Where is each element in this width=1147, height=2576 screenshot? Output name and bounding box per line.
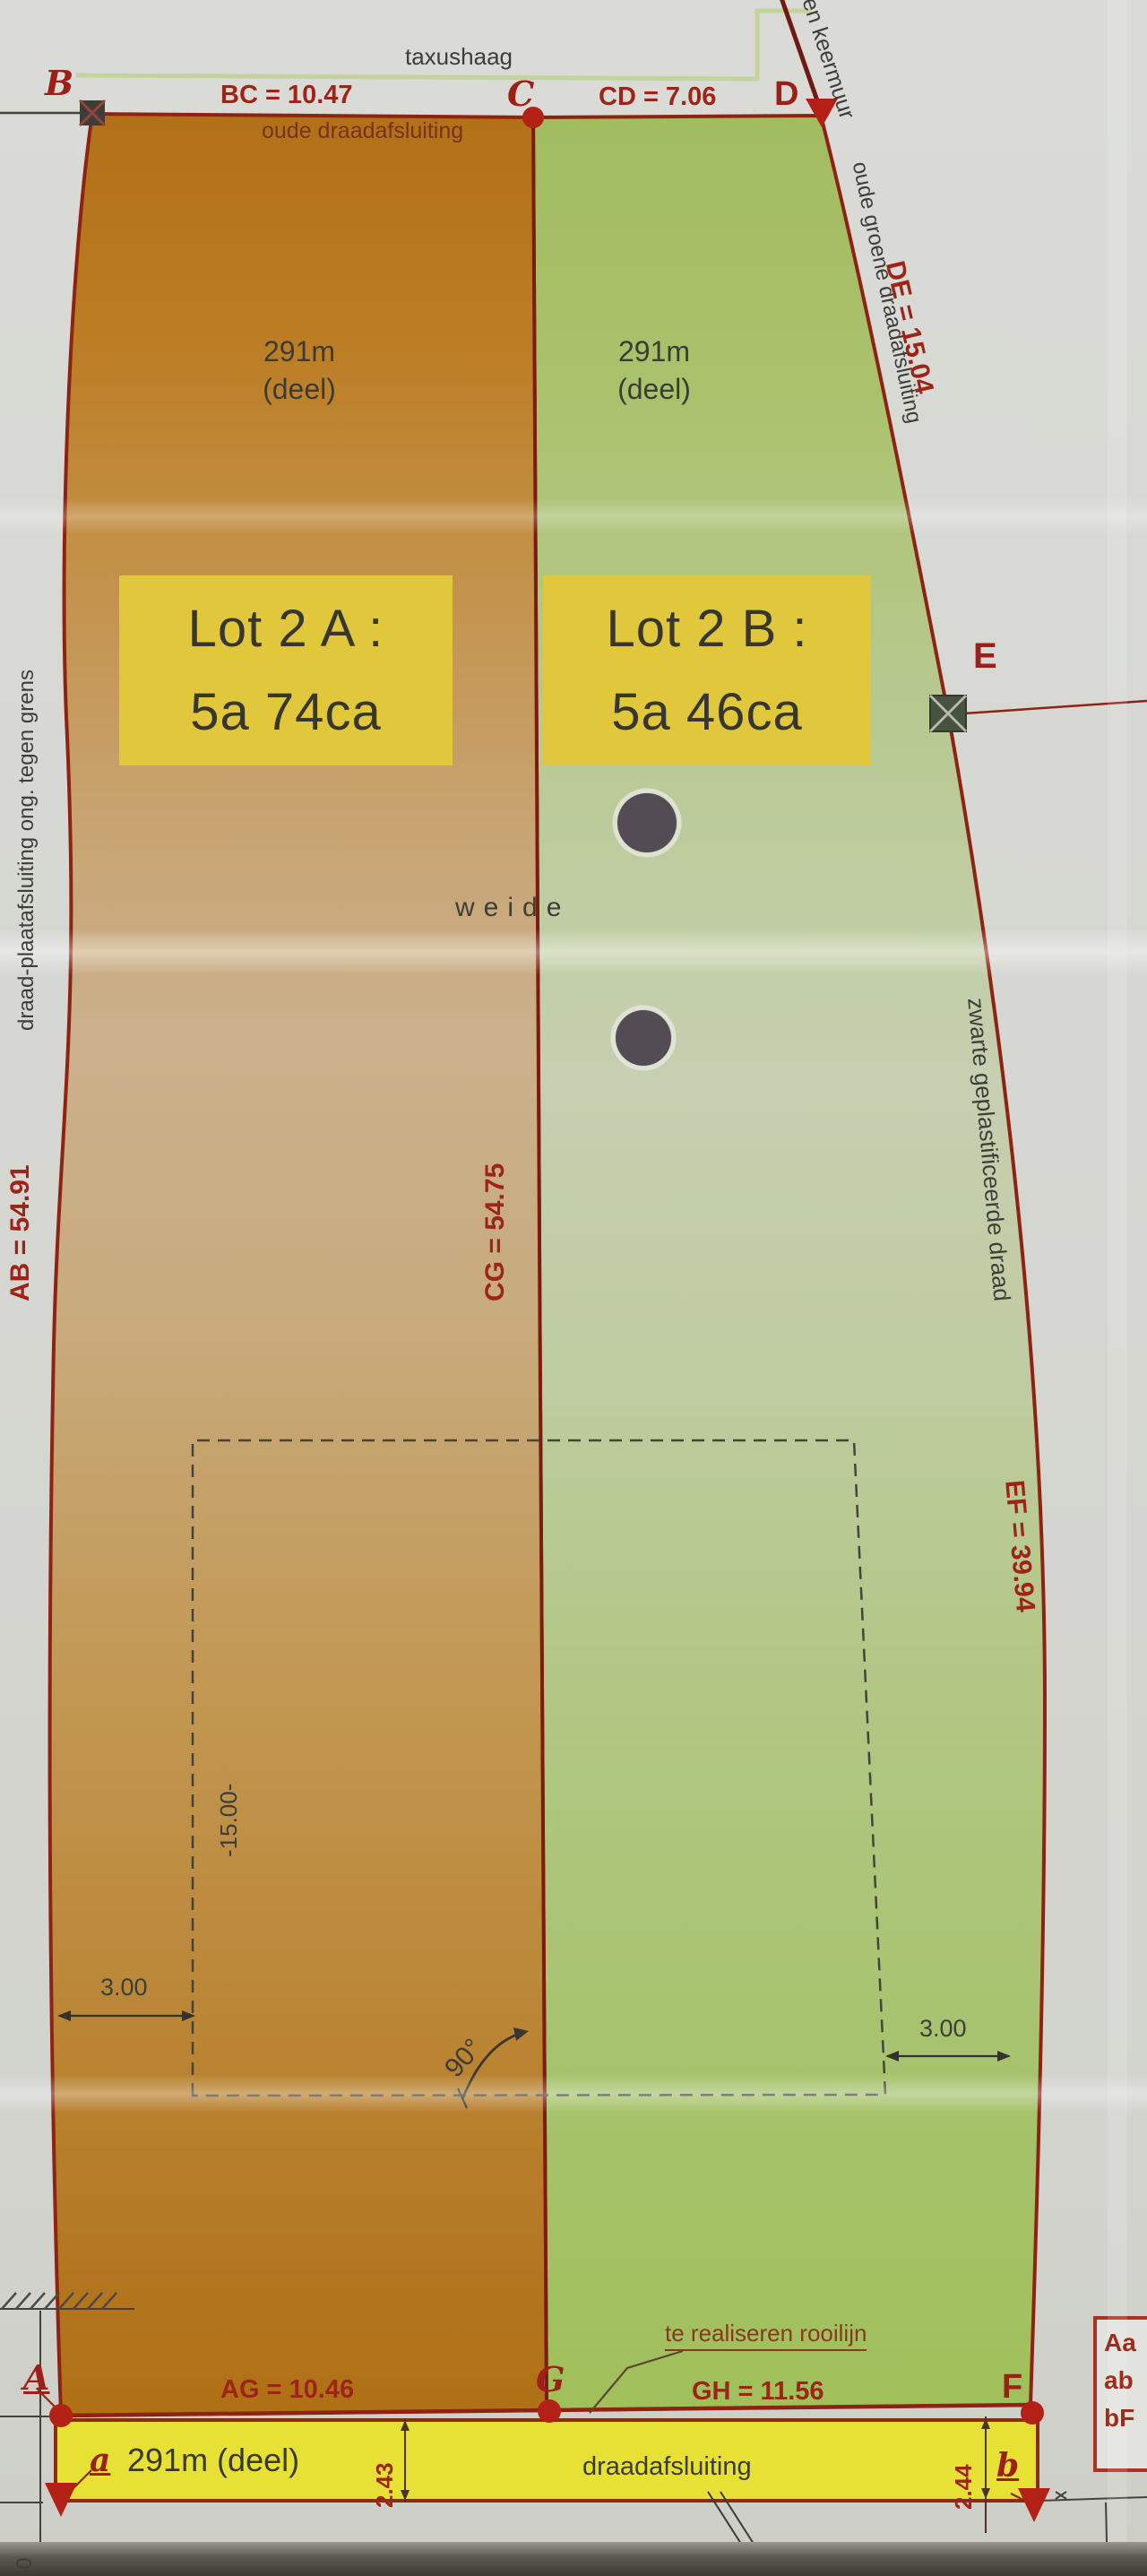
lot-2a-area-deel: (deel) (219, 371, 380, 409)
lot-2a-name: Lot 2 A : (188, 599, 384, 659)
lot-2a-area-value: 291m (219, 333, 380, 371)
fence-label: draadafsluiting (582, 2452, 752, 2482)
point-b-lower-marker (1018, 2488, 1050, 2522)
point-e-label: E (973, 636, 997, 677)
cg-dimension: CG = 54.75 (480, 1163, 511, 1301)
ab-dimension: AB = 54.91 (5, 1164, 36, 1301)
legend-item-aa: Aa (1104, 2329, 1136, 2357)
punch-hole-bottom (613, 1007, 674, 1068)
point-b-lower-label: b (996, 2447, 1019, 2485)
gh-dimension: GH = 11.56 (692, 2377, 824, 2407)
offset-left-label: 3.00 (100, 1974, 148, 2001)
lot-2b-area-deel: (deel) (573, 371, 735, 409)
bottom-road-band (0, 2542, 1147, 2576)
lot-2a-box: Lot 2 A : 5a 74ca (119, 575, 453, 765)
point-a-marker (49, 2404, 73, 2427)
meadow-label: weide (455, 893, 570, 923)
punch-hole-top (615, 791, 679, 855)
lot-2b-area-value: 291m (573, 333, 735, 371)
lot-2b-name: Lot 2 B : (606, 599, 807, 659)
fold-crease-2 (0, 929, 1147, 975)
lot-2a-area: 291m (deel) (219, 333, 380, 408)
lot-2b-area: 291m (deel) (573, 333, 735, 408)
point-a-label: A (23, 2357, 49, 2398)
point-f-label: F (1002, 2368, 1022, 2407)
point-a-lower-label: a (90, 2442, 110, 2479)
lot-2a-size: 5a 74ca (190, 682, 381, 742)
strip-area-label: 291m (deel) (127, 2442, 299, 2479)
point-f-marker (1021, 2401, 1044, 2425)
fold-crease-1 (0, 498, 1147, 534)
cadastral-plan-scan: taxushaag B BC = 10.47 C CD = 7.06 D oud… (0, 0, 1147, 2576)
bc-dimension: BC = 10.47 (220, 81, 353, 110)
offset-right-label: 3.00 (919, 2015, 967, 2043)
point-c-label: C (507, 73, 534, 114)
point-d-label: D (774, 75, 798, 114)
depth-dimension: -15.00- (215, 1784, 243, 1857)
legend-item-ab: ab (1104, 2366, 1134, 2395)
left-fence-label: draad-plaatafsluiting ong. tegen grens (14, 670, 39, 1031)
margin-dimension: 50 (13, 2557, 38, 2576)
fold-crease-3 (0, 2074, 1147, 2114)
lot-2b-box: Lot 2 B : 5a 46ca (543, 575, 871, 765)
fold-crease-vertical (1108, 0, 1127, 2576)
point-b-marker (80, 100, 105, 125)
strip-left-dimension: 2.43 (371, 2462, 399, 2508)
cd-dimension: CD = 7.06 (599, 82, 716, 112)
building-line-label: te realiseren rooilijn (665, 2320, 867, 2351)
old-fence-label: oude draadafsluiting (262, 118, 463, 144)
lot-2b-size: 5a 46ca (611, 682, 802, 742)
point-g-marker (538, 2399, 561, 2423)
point-b-label: B (45, 63, 73, 103)
ag-dimension: AG = 10.46 (220, 2375, 354, 2405)
point-e-marker (930, 696, 966, 731)
hedge-label: taxushaag (405, 43, 513, 71)
lot-2b-region (533, 116, 1045, 2410)
strip-right-dimension: 2.44 (950, 2464, 978, 2510)
legend-item-bf: bF (1104, 2404, 1134, 2433)
point-g-label: G (536, 2359, 565, 2399)
